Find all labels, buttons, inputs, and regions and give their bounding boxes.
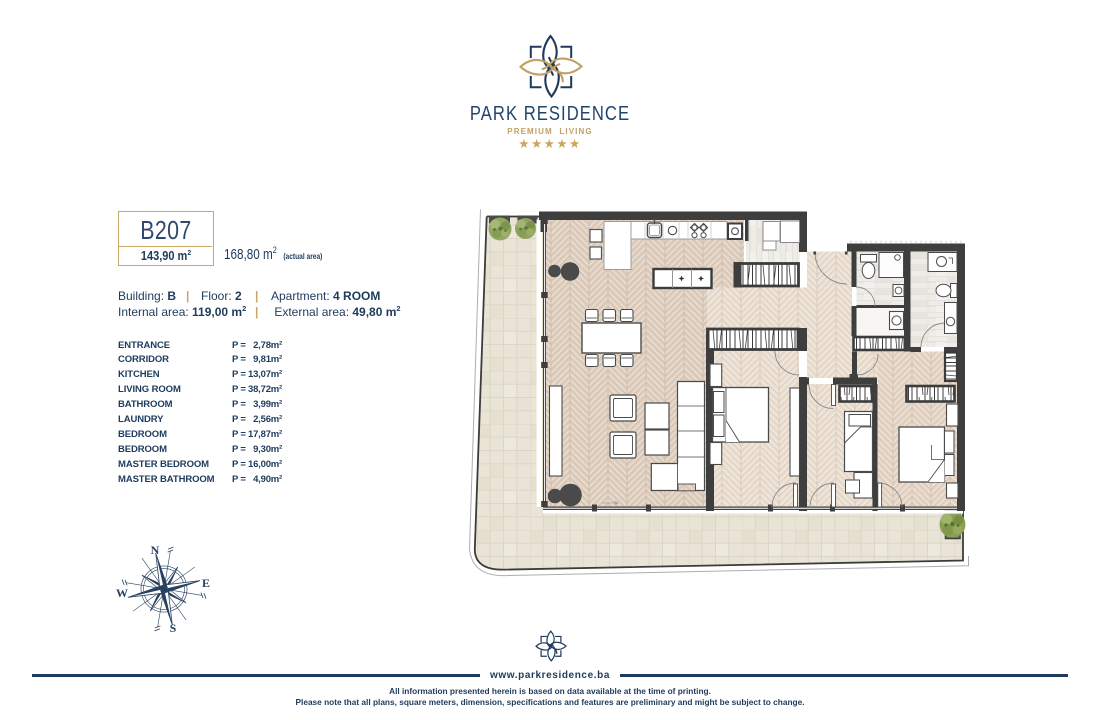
svg-text:N: N bbox=[151, 543, 160, 557]
svg-text:S: S bbox=[170, 621, 177, 635]
svg-text:W: W bbox=[116, 586, 128, 600]
svg-text:E: E bbox=[202, 576, 210, 590]
